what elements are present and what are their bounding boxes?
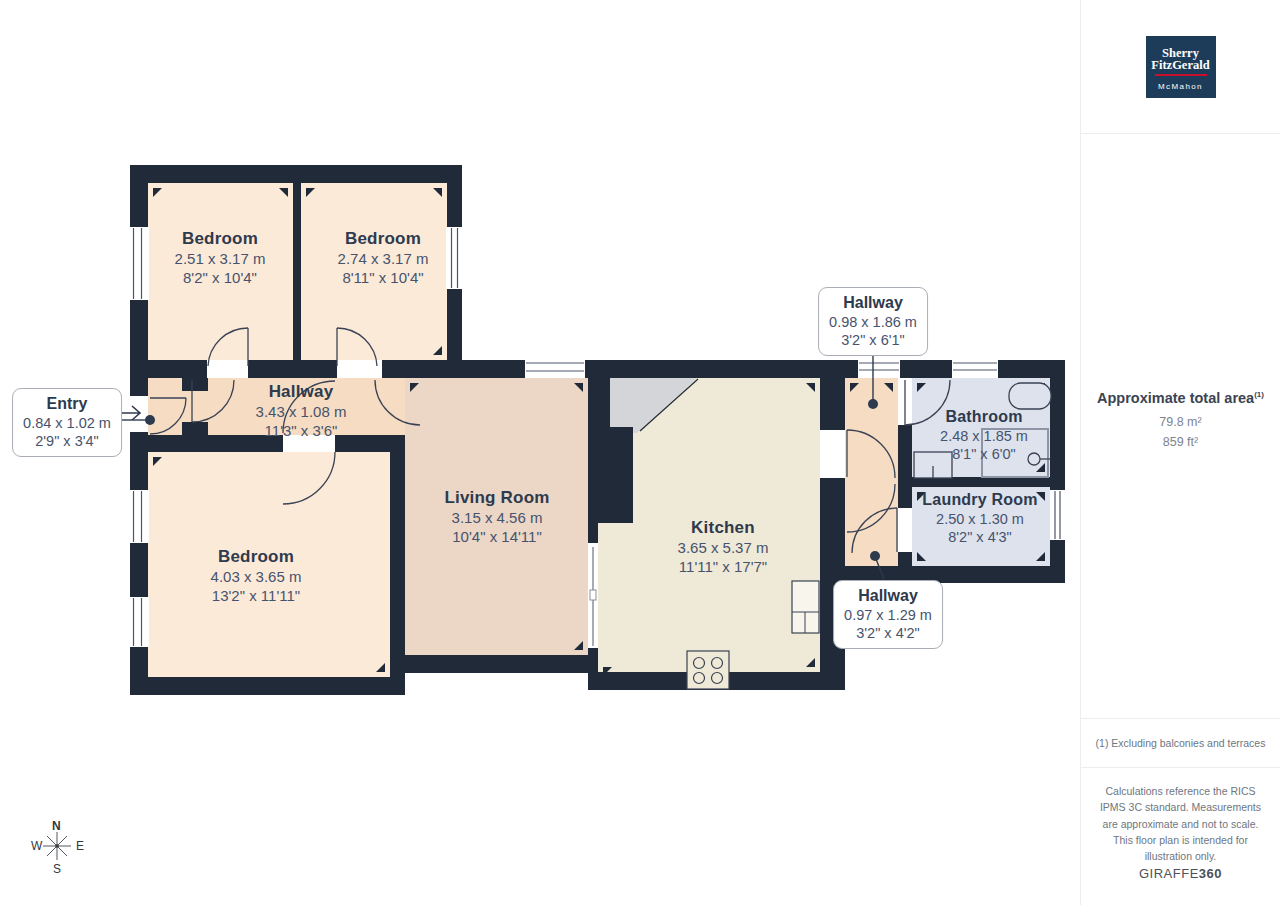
compass-north-label: N (52, 819, 61, 833)
giraffe-number: 360 (1199, 866, 1222, 881)
room-dim-metric: 2.50 x 1.30 m (922, 510, 1037, 528)
callout-dim-imperial: 2'9" x 3'4" (23, 432, 111, 450)
total-area-block: Approximate total area(1) 79.8 m² 859 ft… (1081, 390, 1280, 449)
room-dim-imperial: 8'1" x 6'0" (940, 445, 1028, 463)
giraffe360-brand: GIRAFFE360 (1081, 866, 1280, 881)
callout-dim-imperial: 3'2" x 4'2" (844, 624, 932, 642)
room-dim-metric: 3.15 x 4.56 m (444, 508, 549, 527)
room-dim-metric: 4.03 x 3.65 m (211, 567, 302, 586)
room-dim-metric: 2.74 x 3.17 m (338, 249, 429, 268)
callout-dim-imperial: 3'2" x 6'1" (829, 331, 917, 349)
callout-name: Hallway (844, 586, 932, 606)
agency-name-top: Sherry (1146, 47, 1216, 59)
hob (687, 651, 729, 689)
room-name: Kitchen (678, 517, 769, 538)
room-name: Living Room (444, 487, 549, 508)
agency-name-bottom: FitzGerald (1146, 59, 1216, 71)
room-label-bedroom-top-right: Bedroom 2.74 x 3.17 m 8'11" x 10'4" (338, 228, 429, 287)
room-label-hallway-main: Hallway 3.43 x 1.08 m 11'3" x 3'6" (256, 381, 347, 440)
room-name: Bathroom (940, 406, 1028, 427)
total-area-title: Approximate total area(1) (1081, 390, 1280, 406)
wide-opening (588, 543, 598, 648)
callout-dim-metric: 0.84 x 1.02 m (23, 414, 111, 432)
callout-name: Hallway (829, 293, 917, 313)
room-label-bedroom-top-left: Bedroom 2.51 x 3.17 m 8'2" x 10'4" (175, 228, 266, 287)
room-dim-imperial: 11'3" x 3'6" (256, 421, 347, 440)
callout-entry: Entry 0.84 x 1.02 m 2'9" x 3'4" (12, 388, 122, 457)
room-dim-imperial: 11'11" x 17'7" (678, 557, 769, 576)
room-dim-metric: 2.51 x 3.17 m (175, 249, 266, 268)
logo-rule (1155, 74, 1207, 76)
room-dim-imperial: 8'2" x 4'3" (922, 528, 1037, 546)
agency-sub-name: McMahon (1146, 82, 1216, 91)
room-dim-imperial: 13'2" x 11'11" (211, 586, 302, 605)
footnote-text: (1) Excluding balconies and terraces (1081, 718, 1280, 768)
room-dim-imperial: 8'11" x 10'4" (338, 268, 429, 287)
footnote-marker: (1) (1254, 390, 1264, 399)
total-area-title-text: Approximate total area (1097, 390, 1254, 406)
disclaimer-text: Calculations reference the RICS IPMS 3C … (1094, 783, 1267, 864)
total-area-imperial: 859 ft² (1081, 435, 1280, 449)
room-label-laundry-room: Laundry Room 2.50 x 1.30 m 8'2" x 4'3" (922, 489, 1037, 546)
room-name: Bedroom (211, 546, 302, 567)
total-area-metric: 79.8 m² (1081, 415, 1280, 429)
callout-name: Entry (23, 394, 111, 414)
callout-dim-metric: 0.97 x 1.29 m (844, 606, 932, 624)
room-label-kitchen: Kitchen 3.65 x 5.37 m 11'11" x 17'7" (678, 517, 769, 576)
room-label-bedroom-left: Bedroom 4.03 x 3.65 m 13'2" x 11'11" (211, 546, 302, 605)
floorplan-page: Bedroom 2.51 x 3.17 m 8'2" x 10'4" Bedro… (0, 0, 1280, 905)
room-label-bathroom: Bathroom 2.48 x 1.85 m 8'1" x 6'0" (940, 406, 1028, 463)
room-name: Bedroom (175, 228, 266, 249)
compass-west-label: W (31, 839, 42, 853)
giraffe-word: GIRAFFE (1139, 866, 1199, 881)
room-dim-metric: 3.65 x 5.37 m (678, 538, 769, 557)
compass-east-label: E (76, 839, 84, 853)
room-name: Laundry Room (922, 489, 1037, 510)
compass-south-label: S (53, 862, 61, 876)
info-sidebar: Sherry FitzGerald McMahon Approximate to… (1080, 0, 1280, 905)
callout-hallway-upper: Hallway 0.98 x 1.86 m 3'2" x 6'1" (818, 287, 928, 356)
room-name: Bedroom (338, 228, 429, 249)
room-dim-metric: 3.43 x 1.08 m (256, 402, 347, 421)
room-dim-imperial: 10'4" x 14'11" (444, 527, 549, 546)
compass-star-icon (43, 832, 71, 860)
room-name: Hallway (256, 381, 347, 402)
room-dim-metric: 2.48 x 1.85 m (940, 427, 1028, 445)
callout-hallway-lower: Hallway 0.97 x 1.29 m 3'2" x 4'2" (833, 580, 943, 649)
room-label-living-room: Living Room 3.15 x 4.56 m 10'4" x 14'11" (444, 487, 549, 546)
callout-dim-metric: 0.98 x 1.86 m (829, 313, 917, 331)
logo-section: Sherry FitzGerald McMahon (1081, 0, 1280, 134)
shower-control (1028, 453, 1040, 465)
room-dim-imperial: 8'2" x 10'4" (175, 268, 266, 287)
agency-logo: Sherry FitzGerald McMahon (1146, 36, 1216, 98)
